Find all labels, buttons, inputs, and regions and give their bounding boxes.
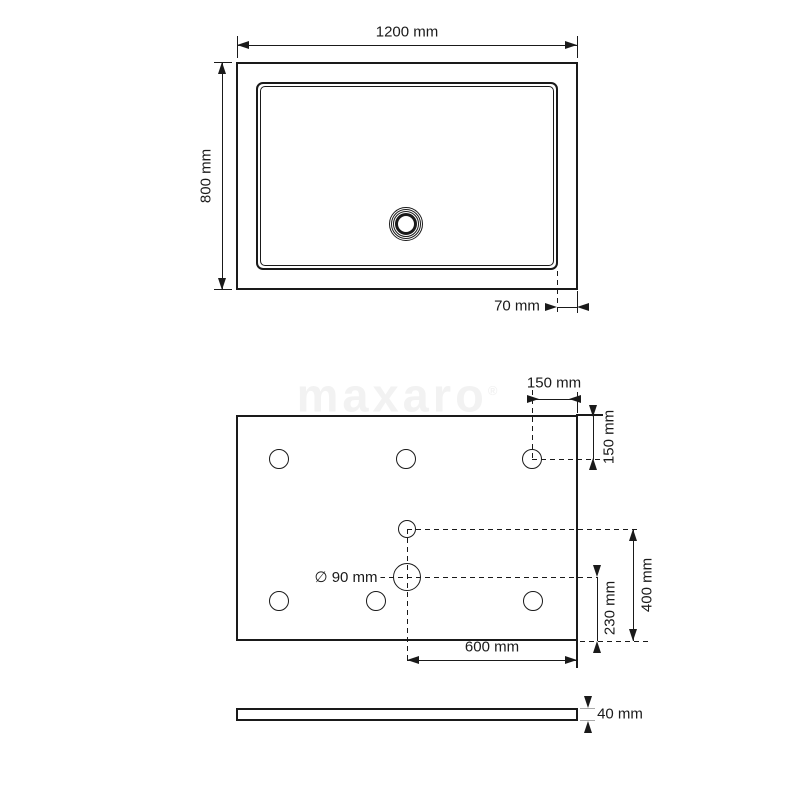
dim-thickness-label: 40 mm [597,706,643,723]
drill-hole [366,591,386,611]
arrowhead-down-icon [584,696,592,708]
drill-hole [396,449,416,469]
brand-watermark-text: maxaro [297,369,488,422]
arrowhead-down-icon [629,629,637,641]
arrowhead-right-icon [565,41,577,49]
extension-line [577,36,578,58]
drain-opening [395,213,417,235]
extension-line-bottom-dashed [580,641,648,642]
dim-hole-y-label: 150 mm [601,410,618,464]
arrowhead-right-icon [527,395,539,403]
arrowhead-up-icon [589,458,597,470]
dim-400-label: 400 mm [639,558,656,612]
arrowhead-left-icon [237,41,249,49]
arrowhead-down-icon [593,565,601,577]
arrowhead-up-icon [218,62,226,74]
dimension-line-drain-offset [557,307,577,308]
arrowhead-right-icon [545,303,557,311]
centerline-middle-hole-h [407,529,639,530]
dimension-line-hole-y [593,415,594,460]
centerline-drain-v [407,529,408,662]
dimension-line-600 [407,660,577,661]
dimension-line-400 [633,529,634,641]
drill-hole [523,591,543,611]
drill-hole [269,591,289,611]
center-hole [398,520,416,538]
drain-hole [393,563,421,591]
arrowhead-left-icon [569,395,581,403]
arrowhead-up-icon [584,721,592,733]
drill-hole [269,449,289,469]
dimension-line-width [237,45,577,46]
arrowhead-left-icon [407,656,419,664]
arrowhead-up-icon [593,641,601,653]
dim-height-label: 800 mm [198,149,215,203]
technical-drawing-shower-tray: maxaro® 1200 mm 800 mm 70 mm [0,0,800,800]
arrowhead-right-icon [565,656,577,664]
arrowhead-down-icon [218,278,226,290]
extension-tick [580,708,595,709]
dim-600-label: 600 mm [465,639,519,656]
arrowhead-down-icon [589,405,597,417]
dim-drain-diameter-label: ∅ 90 mm [311,568,380,586]
extension-line [576,641,578,668]
dim-230-label: 230 mm [602,581,619,635]
dim-width-label: 1200 mm [376,24,439,41]
registered-mark: ® [488,383,498,398]
dim-drain-offset-label: 70 mm [494,298,540,315]
drill-hole [522,449,542,469]
tray-profile [236,708,578,721]
arrowhead-left-icon [577,303,589,311]
dim-hole-x-label: 150 mm [527,375,581,392]
arrowhead-up-icon [629,529,637,541]
dimension-line-height [222,62,223,290]
dimension-line-230 [597,577,598,641]
